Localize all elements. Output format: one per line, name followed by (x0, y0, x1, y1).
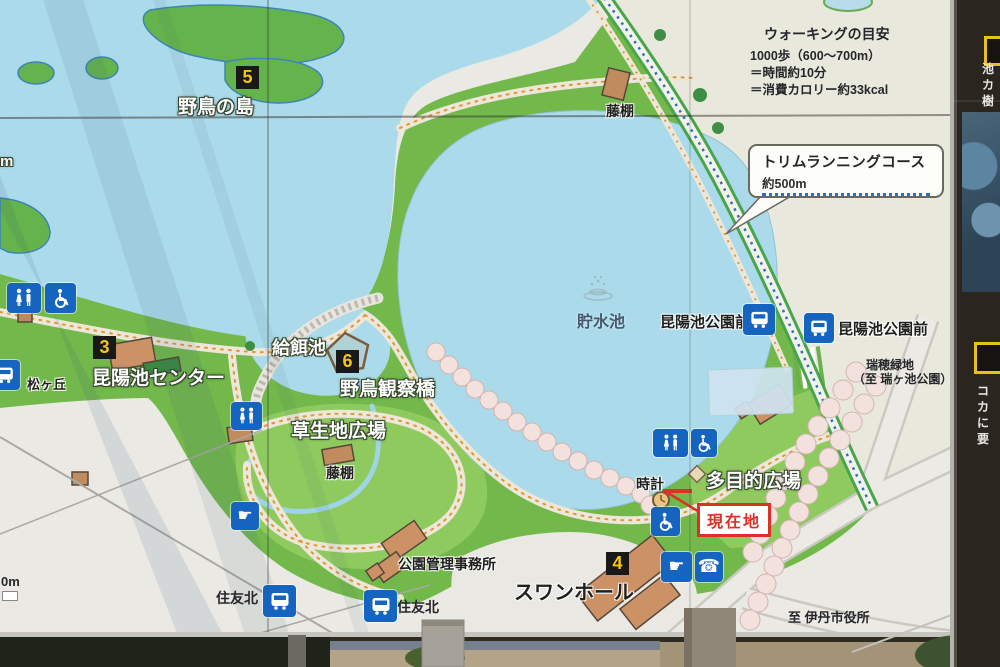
callout-dotted-line (762, 193, 930, 196)
callout-title: トリムランニングコース (762, 151, 932, 172)
label-multipurpose-plaza: 多目的広場 (706, 466, 801, 493)
label-koyaike-center: 昆陽池センター (92, 363, 225, 390)
sign-post-middle (422, 620, 464, 667)
walking-info-line3: ＝消費カロリー約33kcal (750, 82, 967, 99)
bus-icon-koyaike-west (743, 304, 775, 335)
label-to-mizugaike: （至 瑞ヶ池公園） (853, 370, 952, 387)
wheelchair-icon (45, 283, 76, 313)
label-reservoir: 貯水池 (577, 308, 625, 332)
toilet-icon-grass-plaza (231, 402, 262, 430)
bus-icon-matsugaoka (0, 360, 20, 390)
label-scale-partial: 0m (1, 574, 20, 589)
label-bird-island: 野鳥の島 (178, 92, 254, 119)
label-bus-koyaike-east: 昆陽池公園前 (838, 318, 928, 339)
small-pond (824, 0, 872, 11)
wheelchair-icon-multipurpose (691, 429, 717, 457)
panel-char: 樹 (982, 92, 994, 109)
label-bird-observation-bridge: 野鳥観察橋 (340, 374, 435, 401)
current-location-box: 現在地 (697, 503, 771, 537)
running-course-callout: トリムランニングコース 約500m (748, 144, 944, 198)
drinking-fountain-icon-grass-plaza: ☛ (231, 502, 259, 530)
walking-info-title: ウォーキングの目安 (764, 24, 967, 44)
label-matsugaoka: 松ヶ丘 (27, 374, 66, 393)
panel-photo (962, 112, 1000, 292)
panel-char: に (977, 414, 989, 431)
label-grass-plaza: 草生地広場 (291, 416, 386, 443)
label-wisteria-south: 藤棚 (326, 463, 354, 483)
label-park-office: 公園管理事務所 (398, 554, 496, 574)
drinking-fountain-icon-swan: ☛ (661, 552, 692, 582)
label-swan-hall: スワンホール (514, 576, 634, 605)
walking-info-line2: ＝時間約10分 (750, 65, 967, 82)
panel-char: 要 (977, 430, 989, 447)
bus-icon-sumitomo-west (263, 585, 296, 617)
assist-wheelchair-icon (651, 507, 680, 536)
toilet-icon-multipurpose (653, 429, 688, 457)
label-sumitomo-east: 住友北 (397, 597, 439, 617)
adjacent-sign-panel: 池 カ 樹 コ カ に 要 (950, 0, 1000, 667)
panel-char: カ (982, 76, 994, 93)
label-left-edge-partial: m (0, 153, 13, 170)
bus-icon-sumitomo-east (364, 590, 397, 622)
label-feeding-pond: 給餌池 (272, 334, 326, 360)
badge-4: 4 (606, 552, 629, 575)
park-map-sign-photo: 野鳥の島 5 給餌池 6 野鳥観察橋 3 昆陽池センター 松ヶ丘 草生地広場 藤… (0, 0, 1000, 667)
panel-char: 池 (982, 60, 994, 77)
toilet-icon (7, 283, 41, 313)
clock-icon (653, 492, 669, 508)
badge-3: 3 (93, 336, 116, 359)
walking-info-line1: 1000歩（600〜700m） (750, 48, 967, 65)
label-wisteria-north: 藤棚 (606, 101, 634, 121)
panel-char: カ (977, 398, 989, 415)
badge-5: 5 (236, 66, 259, 89)
phone-icon: ☎ (695, 552, 723, 582)
label-clock: 時計 (636, 474, 664, 494)
net-enclosure (708, 367, 794, 416)
label-to-itami-city-hall: 至 伊丹市役所 (788, 607, 870, 626)
sign-post-left (288, 635, 306, 667)
scale-bar-partial (2, 591, 18, 601)
badge-6: 6 (336, 350, 359, 373)
label-bus-koyaike-west: 昆陽池公園前 (660, 311, 750, 332)
label-sumitomo-west: 住友北 (216, 588, 258, 608)
panel-badge-bottom (974, 342, 1000, 374)
walking-info: ウォーキングの目安 1000歩（600〜700m） ＝時間約10分 ＝消費カロリ… (742, 24, 967, 99)
bus-icon-koyaike-east (804, 313, 834, 343)
callout-distance: 約500m (762, 173, 932, 192)
panel-char: コ (977, 382, 989, 399)
